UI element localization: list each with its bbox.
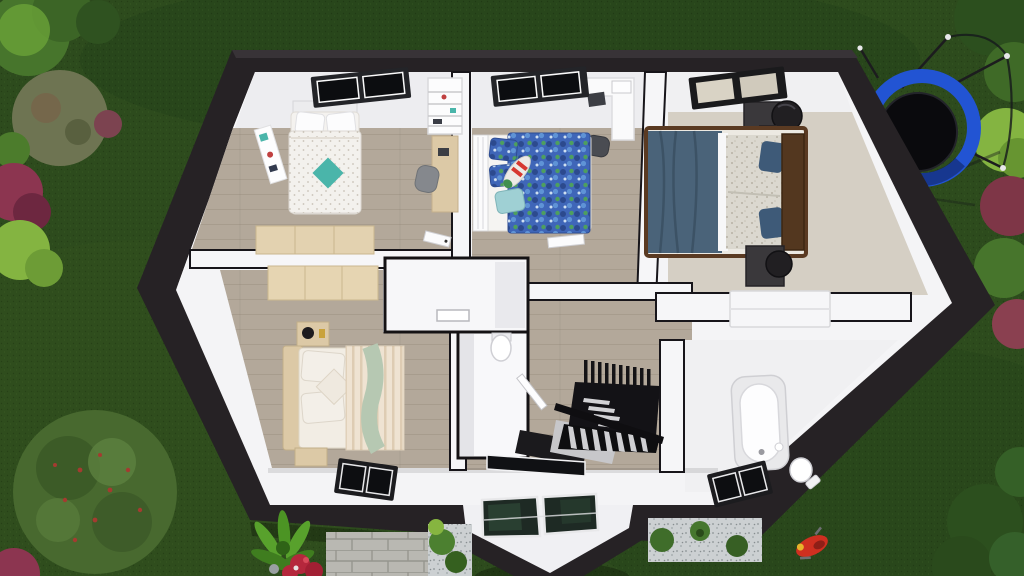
maroon-bush	[94, 110, 122, 138]
single-bed	[289, 101, 361, 214]
stone	[269, 564, 279, 574]
headboard	[782, 134, 804, 250]
light-green-bush-shade	[25, 249, 63, 287]
bush	[445, 551, 467, 573]
nightstand	[295, 448, 327, 466]
toilet	[491, 335, 511, 361]
glass-reflection	[488, 503, 522, 531]
pillow-pattern	[489, 138, 518, 162]
bush	[76, 0, 120, 44]
double-bed-master	[646, 128, 806, 256]
apple-tree-canopy	[13, 410, 177, 574]
desk-item	[438, 148, 449, 156]
pole-cap	[1004, 53, 1010, 59]
pole-cap	[1000, 165, 1006, 171]
wall-hall-bath	[660, 340, 684, 472]
duvet-pattern	[508, 133, 590, 233]
landing-shade	[495, 262, 525, 328]
canopy-shade	[92, 492, 152, 552]
printer	[612, 81, 631, 93]
plant	[726, 535, 748, 557]
canopy-light	[88, 438, 136, 486]
bush	[428, 519, 444, 535]
attic-hatch	[437, 310, 469, 321]
floorplan-render	[0, 0, 1024, 576]
double-bed-blue	[473, 133, 591, 233]
wardrobe	[256, 226, 374, 254]
bush-highlight	[0, 4, 50, 56]
pole-cap	[857, 45, 862, 50]
plant-core	[696, 529, 704, 537]
duvet	[648, 131, 722, 253]
olive-branch	[31, 93, 61, 123]
double-bed-cream	[283, 346, 404, 450]
aqua-pillow	[494, 188, 525, 215]
gold-item	[319, 329, 325, 338]
wall-top-highlight	[232, 50, 858, 58]
canopy-light	[36, 498, 80, 542]
laptop	[587, 92, 606, 107]
paver-joints	[326, 532, 428, 576]
headboard	[473, 135, 488, 231]
pole-cap	[945, 34, 951, 40]
olive-shade	[65, 119, 91, 145]
bookshelf	[428, 78, 462, 134]
wc-wall-shade	[460, 334, 474, 456]
sage-throw	[369, 346, 378, 450]
tap	[775, 443, 783, 451]
wardrobe	[268, 266, 378, 300]
lamp	[766, 251, 792, 277]
bathtub	[731, 375, 790, 472]
plant	[650, 528, 674, 552]
lamp	[302, 327, 314, 339]
glass-reflection	[560, 498, 591, 524]
